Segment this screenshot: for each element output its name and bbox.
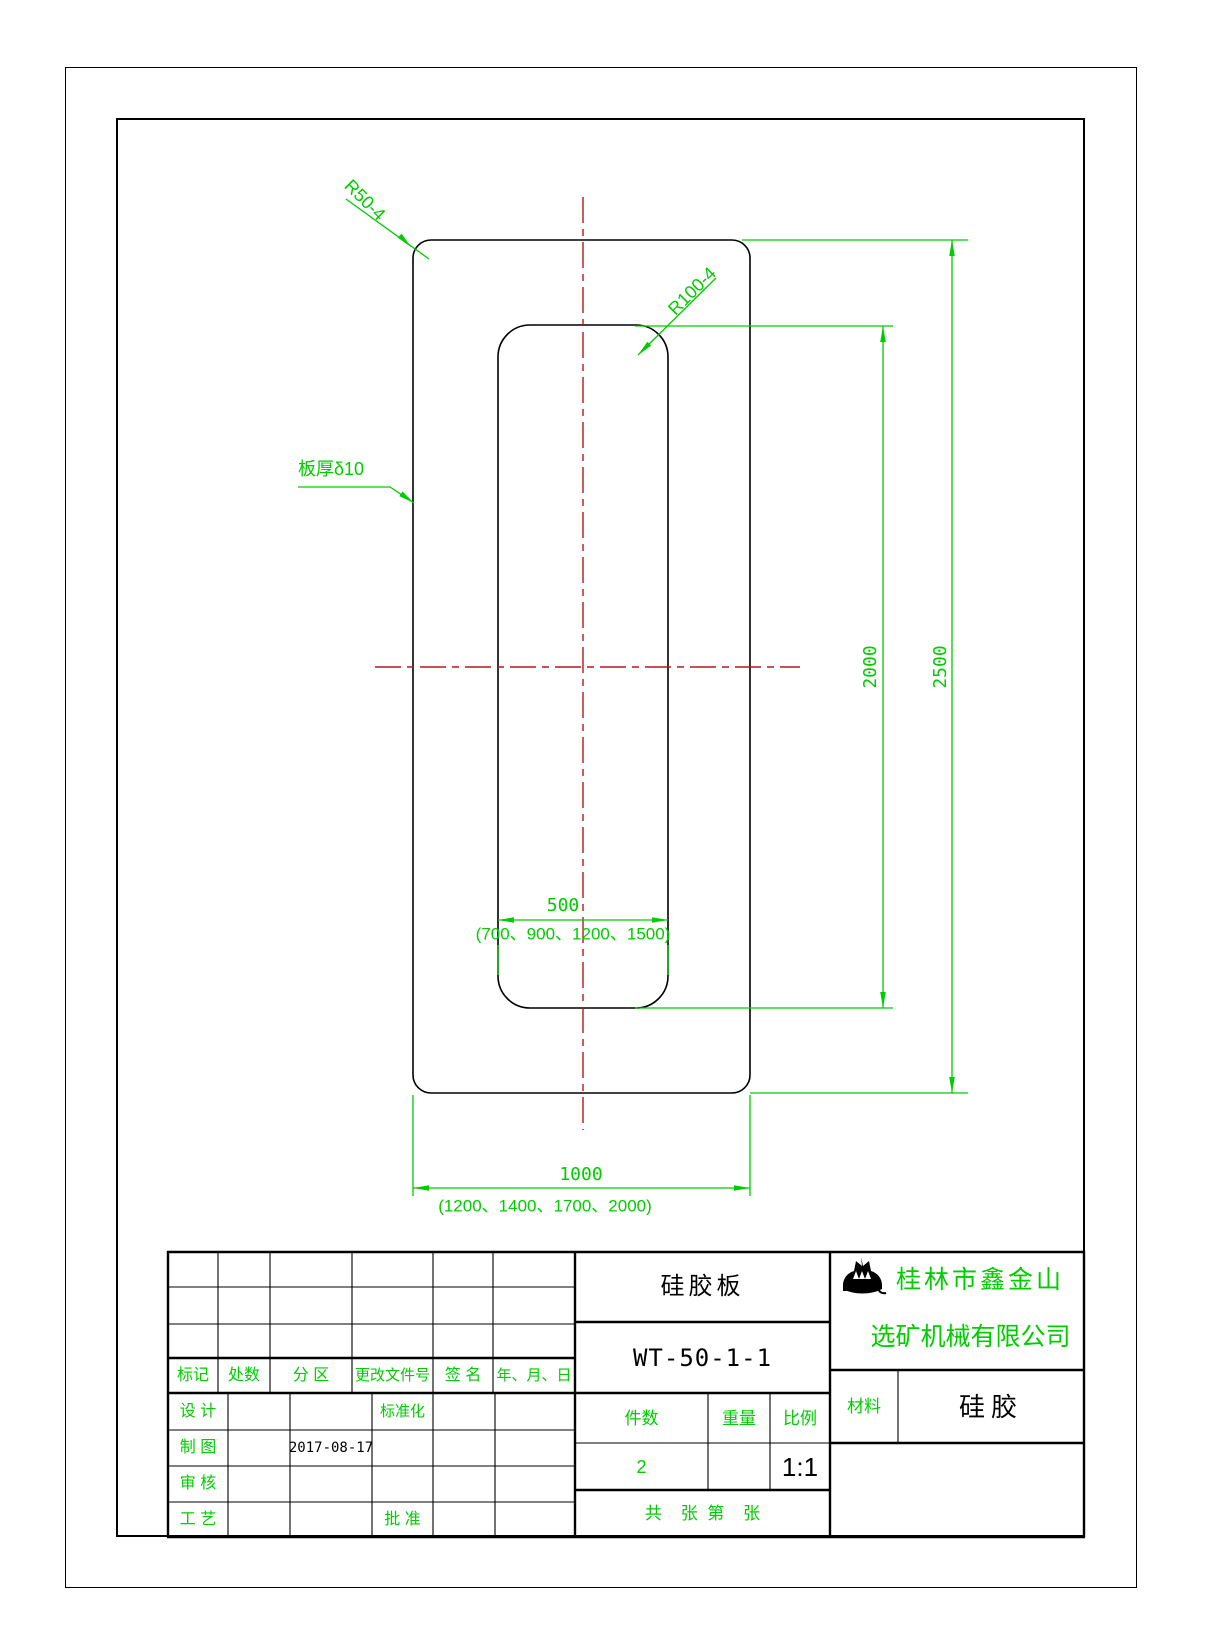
revision-col-zone: 分 区: [270, 1358, 352, 1393]
role-approve: 批 准: [372, 1502, 433, 1537]
scale-label: 比例: [770, 1393, 830, 1443]
role-process: 工 艺: [168, 1502, 228, 1537]
role-design: 设 计: [168, 1393, 228, 1430]
draft-date: 2017-08-17: [290, 1430, 372, 1466]
thickness-label: 板厚δ10: [298, 460, 364, 478]
dim-inner-width: 500: [547, 897, 580, 915]
quantity-value: 2: [575, 1443, 708, 1490]
revision-col-doc-no: 更改文件号: [352, 1358, 433, 1393]
drawing-number: WT-50-1-1: [575, 1322, 830, 1393]
drawing-sheet: R50-4 R100-4 板厚δ10 500 (700、900、1200、150…: [0, 0, 1223, 1640]
dimension-lines: [298, 199, 968, 1196]
part-name: 硅胶板: [575, 1252, 830, 1322]
revision-col-date: 年、月、日: [493, 1358, 575, 1393]
sheet-count: 共 张 第 张: [575, 1490, 830, 1537]
revision-col-signature: 签 名: [433, 1358, 493, 1393]
material-label: 材料: [830, 1370, 898, 1443]
weight-label: 重量: [708, 1393, 770, 1443]
dim-outer-height: 2500: [932, 645, 950, 688]
revision-col-mark: 标记: [168, 1358, 218, 1393]
revision-col-count: 处数: [218, 1358, 270, 1393]
dim-inner-height: 2000: [862, 645, 880, 688]
dim-outer-width-options: (1200、1400、1700、2000): [438, 1198, 652, 1215]
dim-inner-width-options: (700、900、1200、1500): [476, 926, 671, 943]
quantity-label: 件数: [575, 1393, 708, 1443]
role-draft: 制 图: [168, 1430, 228, 1466]
centerlines: [375, 197, 800, 1130]
company-name-line1: 桂林市鑫金山: [880, 1262, 1080, 1298]
leader-thickness: [298, 487, 414, 503]
dimension-arrowheads: [398, 234, 955, 1191]
dim-outer-width: 1000: [559, 1166, 602, 1184]
material-value: 硅胶: [898, 1370, 1084, 1443]
role-standardization: 标准化: [372, 1393, 433, 1430]
role-check: 审 核: [168, 1466, 228, 1502]
scale-value: 1:1: [770, 1443, 830, 1490]
company-name-line2: 选矿机械有限公司: [858, 1320, 1083, 1354]
